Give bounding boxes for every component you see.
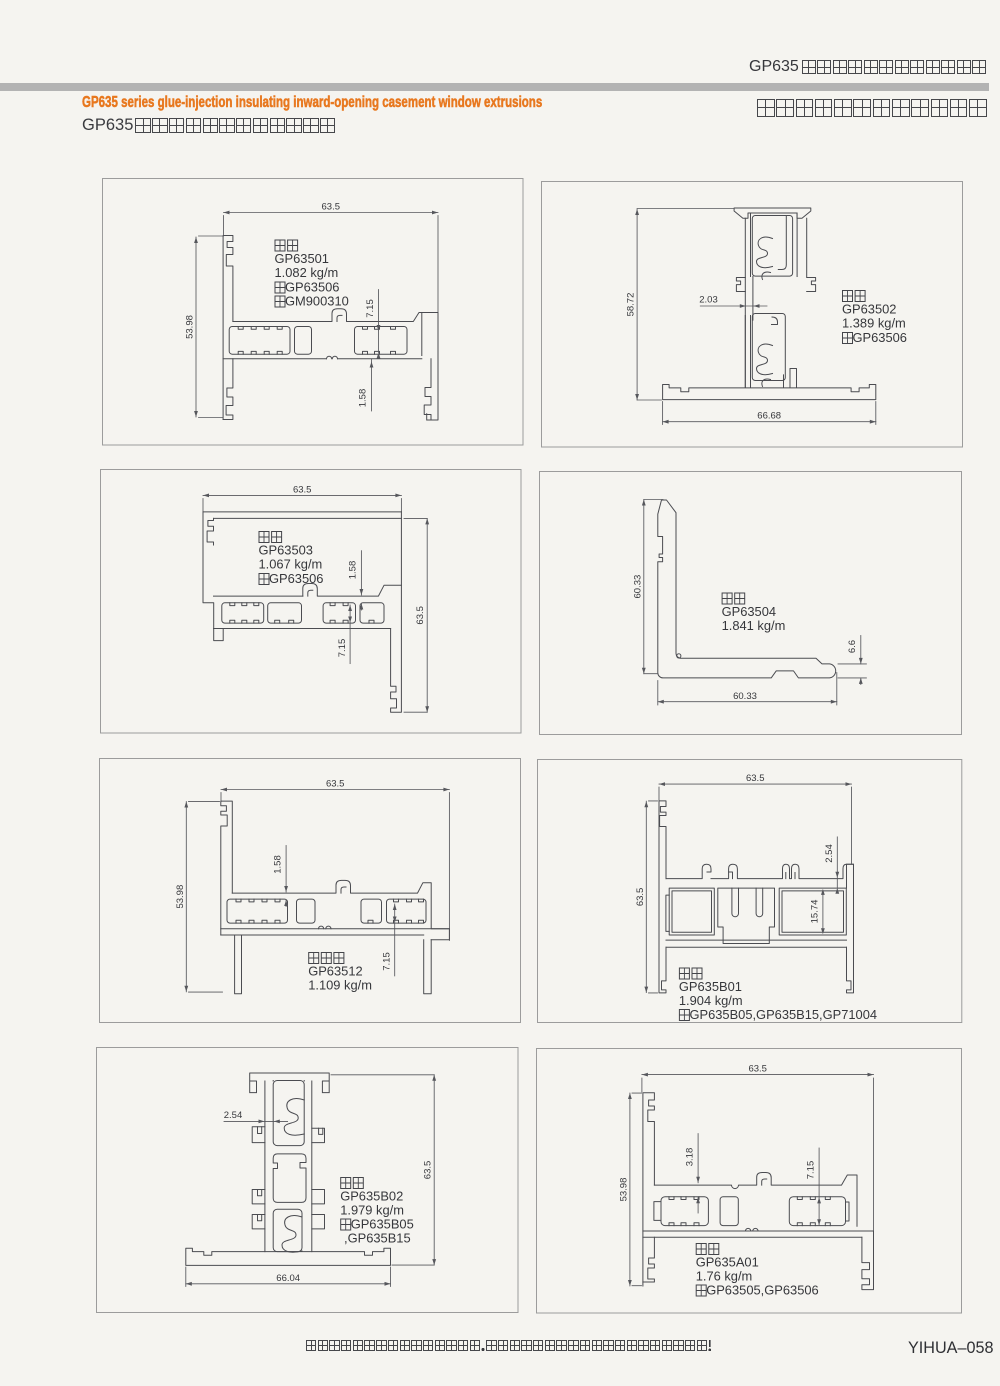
svg-text:1.109 kg/m: 1.109 kg/m [308, 977, 372, 992]
svg-text:2.54: 2.54 [823, 844, 834, 862]
svg-text:63.5: 63.5 [293, 484, 312, 495]
svg-text:GP635A01: GP635A01 [695, 1255, 758, 1270]
svg-text:7.15: 7.15 [364, 299, 375, 318]
svg-text:15.74: 15.74 [809, 899, 820, 923]
svg-text:6.6: 6.6 [847, 639, 858, 652]
svg-text:1.067 kg/m: 1.067 kg/m [259, 557, 323, 572]
svg-text:GP63512: GP63512 [308, 963, 362, 978]
svg-text:GP63502: GP63502 [842, 301, 896, 316]
svg-text:1.389 kg/m: 1.389 kg/m [842, 315, 906, 330]
svg-text:63.5: 63.5 [321, 202, 340, 213]
svg-text:66.68: 66.68 [757, 410, 781, 421]
svg-text:GP635B05,GP635B15,GP71004: GP635B05,GP635B15,GP71004 [689, 1006, 877, 1021]
svg-text:63.5: 63.5 [415, 606, 426, 625]
svg-text:60.33: 60.33 [733, 691, 757, 702]
svg-text:1.082 kg/m: 1.082 kg/m [274, 265, 338, 280]
svg-text:63.5: 63.5 [325, 778, 344, 789]
svg-text:1.58: 1.58 [272, 855, 283, 874]
svg-text:,GP635B15: ,GP635B15 [344, 1230, 411, 1245]
svg-text:66.04: 66.04 [276, 1273, 300, 1284]
svg-text:GP63501: GP63501 [274, 251, 328, 266]
svg-text:GP635B01: GP635B01 [678, 978, 741, 993]
svg-text:63.5: 63.5 [746, 773, 764, 784]
svg-text:GP635B02: GP635B02 [340, 1189, 403, 1204]
svg-text:GP63504: GP63504 [722, 604, 776, 619]
svg-text:63.5: 63.5 [748, 1064, 767, 1075]
svg-text:GP63505,GP63506: GP63505,GP63506 [706, 1282, 819, 1297]
svg-text:GP63506: GP63506 [285, 279, 339, 294]
svg-text:63.5: 63.5 [634, 887, 645, 905]
svg-text:2.54: 2.54 [224, 1110, 243, 1121]
svg-text:53.98: 53.98 [174, 884, 185, 908]
svg-text:58.72: 58.72 [625, 292, 636, 316]
svg-text:3.18: 3.18 [684, 1148, 695, 1167]
svg-text:GP63506: GP63506 [852, 329, 906, 344]
svg-text:53.98: 53.98 [184, 315, 195, 339]
svg-text:1.979 kg/m: 1.979 kg/m [340, 1203, 404, 1218]
svg-text:GM900310: GM900310 [285, 293, 349, 308]
svg-text:1.904 kg/m: 1.904 kg/m [678, 992, 742, 1007]
svg-text:7.15: 7.15 [381, 952, 392, 971]
svg-text:GP63503: GP63503 [259, 543, 313, 558]
svg-text:7.15: 7.15 [337, 639, 348, 658]
svg-text:7.15: 7.15 [805, 1161, 816, 1180]
svg-text:1.76 kg/m: 1.76 kg/m [695, 1269, 752, 1284]
svg-text:1.58: 1.58 [357, 389, 368, 408]
svg-text:GP63506: GP63506 [269, 571, 323, 586]
svg-text:1.841 kg/m: 1.841 kg/m [722, 618, 786, 633]
svg-text:60.33: 60.33 [632, 574, 643, 598]
svg-text:2.03: 2.03 [699, 294, 718, 305]
svg-text:53.98: 53.98 [618, 1178, 629, 1202]
svg-text:1.58: 1.58 [348, 561, 359, 580]
svg-text:GP635B05: GP635B05 [351, 1216, 414, 1231]
svg-text:63.5: 63.5 [423, 1161, 434, 1180]
